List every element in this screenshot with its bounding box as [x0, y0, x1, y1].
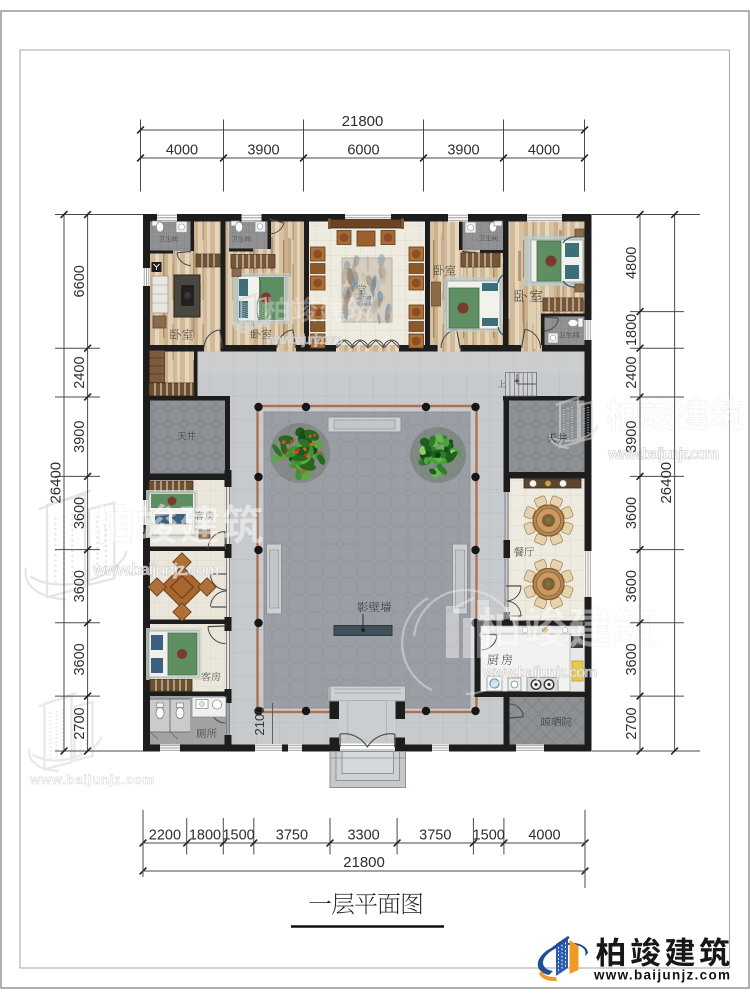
svg-text:6600: 6600	[72, 265, 88, 297]
svg-text:26400: 26400	[658, 462, 675, 504]
svg-text:www.baijunjz.com: www.baijunjz.com	[92, 560, 219, 579]
svg-text:21800: 21800	[342, 113, 384, 130]
svg-text:3900: 3900	[447, 143, 479, 159]
svg-text:3750: 3750	[419, 828, 451, 844]
svg-text:2200: 2200	[149, 828, 181, 844]
svg-text:3600: 3600	[72, 497, 88, 529]
svg-text:4000: 4000	[528, 143, 560, 159]
svg-text:4800: 4800	[624, 247, 640, 279]
svg-text:21800: 21800	[343, 854, 385, 871]
svg-text:3600: 3600	[72, 643, 88, 675]
svg-text:3900: 3900	[624, 421, 640, 453]
svg-text:4000: 4000	[528, 828, 560, 844]
svg-text:2400: 2400	[624, 356, 640, 388]
svg-text:6000: 6000	[347, 143, 379, 159]
svg-text:3300: 3300	[347, 828, 379, 844]
svg-text:www.baijunjz.com: www.baijunjz.com	[482, 664, 597, 681]
svg-text:1500: 1500	[222, 828, 254, 844]
svg-text:2700: 2700	[72, 707, 88, 739]
svg-text:3750: 3750	[276, 828, 308, 844]
svg-text:2100: 2100	[252, 707, 267, 736]
svg-text:1800: 1800	[189, 828, 221, 844]
svg-text:3600: 3600	[624, 570, 640, 602]
svg-text:www.baijunjz.com: www.baijunjz.com	[265, 332, 343, 347]
svg-text:4000: 4000	[166, 143, 198, 159]
svg-text:3600: 3600	[624, 643, 640, 675]
svg-text:3600: 3600	[624, 497, 640, 529]
svg-text:2400: 2400	[72, 356, 88, 388]
svg-text:3900: 3900	[72, 421, 88, 453]
svg-text:1800: 1800	[624, 314, 640, 346]
svg-text:3900: 3900	[247, 143, 279, 159]
svg-text:1500: 1500	[473, 828, 505, 844]
svg-text:26400: 26400	[48, 462, 65, 504]
svg-text:3600: 3600	[72, 570, 88, 602]
svg-text:www.baijunjz.com: www.baijunjz.com	[29, 772, 155, 787]
svg-text:www.baijunjz.com: www.baijunjz.com	[593, 968, 731, 983]
svg-text:2700: 2700	[624, 707, 640, 739]
